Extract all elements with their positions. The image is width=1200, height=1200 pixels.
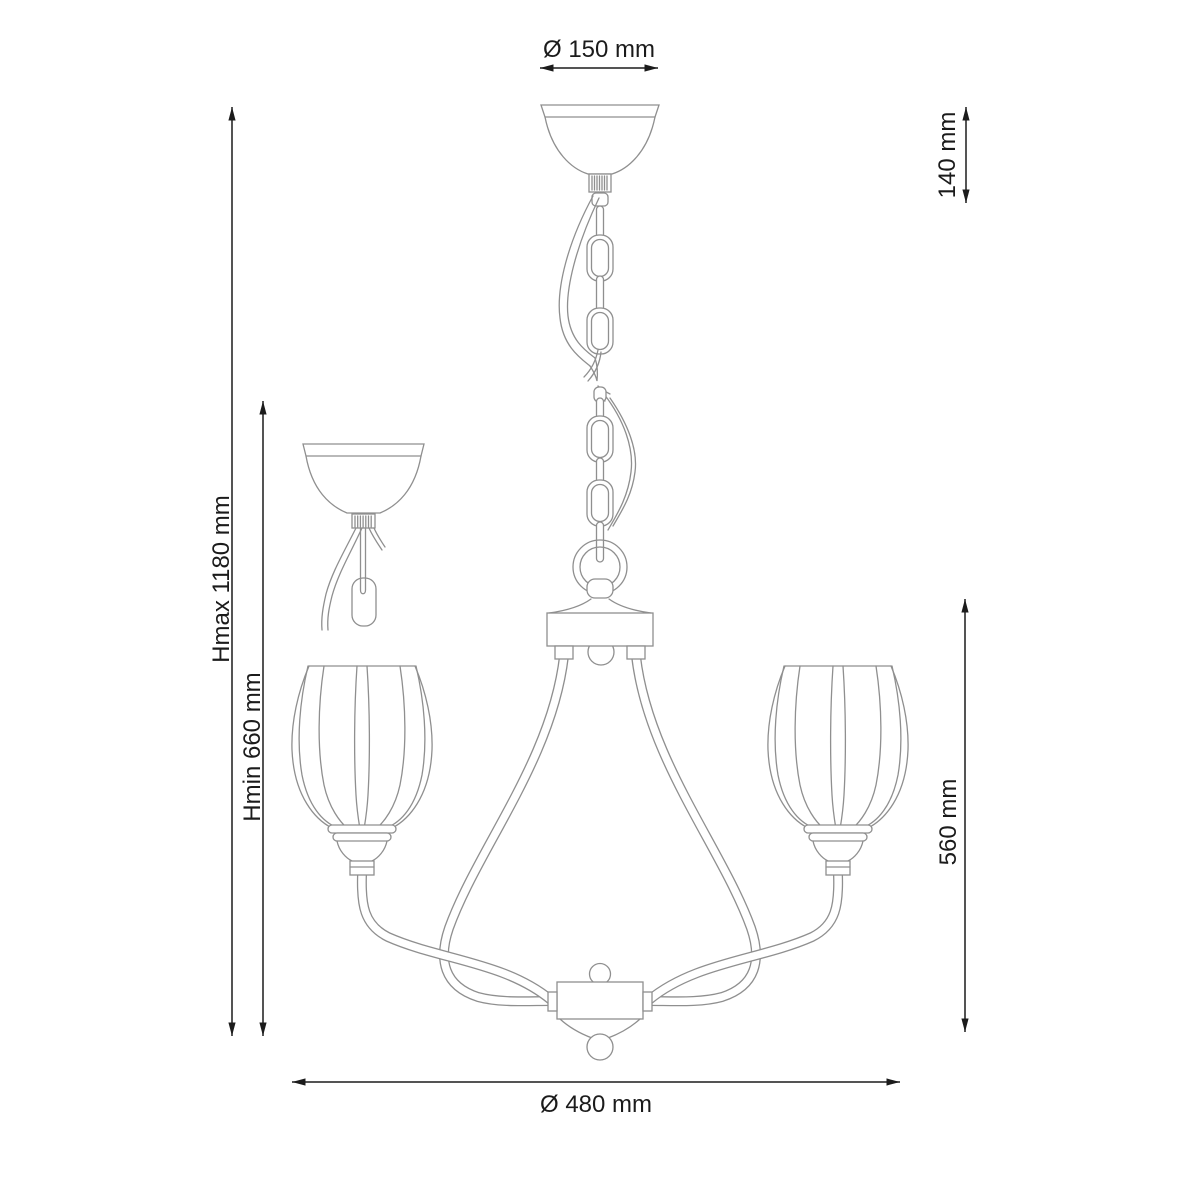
bottom-finial-ball <box>587 1034 613 1060</box>
dimension-label-canopy-diameter: Ø 150 mm <box>543 36 655 63</box>
bottom-hub <box>548 964 652 1061</box>
inset-cord <box>322 528 356 630</box>
power-cord-upper <box>559 196 599 381</box>
suspension-chain-lower <box>587 387 613 562</box>
arm-and-shade-right <box>636 656 908 1001</box>
dimension-fixture-diameter: Ø 480 mm <box>292 1082 900 1118</box>
chandelier-technical-drawing: Ø 150 mm 140 mm Hmax 1180 mm Hmin 660 mm… <box>0 0 1200 1200</box>
dimension-height-max: Hmax 1180 mm <box>208 107 235 1036</box>
ring-knob <box>587 579 613 598</box>
dimension-label-height-max: Hmax 1180 mm <box>208 495 235 663</box>
dimension-label-height-min: Hmin 660 mm <box>239 672 266 821</box>
dimension-label-fixture-height: 560 mm <box>935 779 962 866</box>
arm-and-shade-left <box>292 656 564 1001</box>
dimension-label-fixture-diameter: Ø 480 mm <box>540 1091 652 1118</box>
dimension-label-canopy-height: 140 mm <box>934 112 961 199</box>
inset-chain-link <box>352 578 376 626</box>
dimension-fixture-height: 560 mm <box>935 599 965 1032</box>
ceiling-canopy <box>541 105 659 206</box>
dimension-canopy-diameter: Ø 150 mm <box>540 36 658 68</box>
dimension-height-min: Hmin 660 mm <box>239 401 266 1036</box>
dimension-canopy-height: 140 mm <box>934 107 966 203</box>
suspension-chain-upper <box>584 206 613 381</box>
canopy-inset-shortened <box>303 444 424 630</box>
top-hub <box>547 599 653 665</box>
